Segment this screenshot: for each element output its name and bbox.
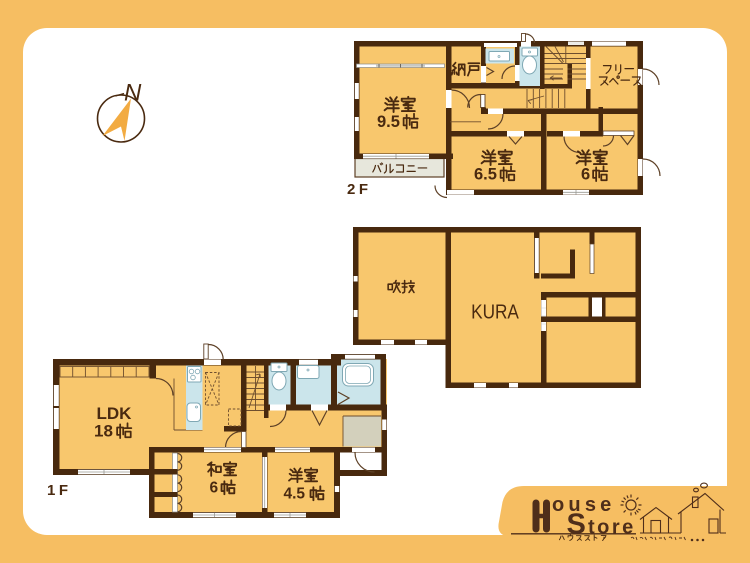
svg-text:LDK: LDK bbox=[97, 404, 133, 423]
svg-text:4.5: 4.5 bbox=[284, 486, 306, 503]
svg-text:9.5: 9.5 bbox=[377, 113, 400, 131]
svg-text:6.5: 6.5 bbox=[474, 166, 497, 184]
svg-text:N: N bbox=[124, 80, 142, 107]
svg-text:18: 18 bbox=[94, 422, 113, 441]
svg-text:6: 6 bbox=[581, 166, 590, 184]
svg-text:KURA: KURA bbox=[471, 301, 519, 324]
svg-text:2F: 2F bbox=[347, 181, 372, 198]
svg-text:tore: tore bbox=[588, 517, 636, 539]
svg-text:6: 6 bbox=[210, 480, 219, 497]
svg-text:1F: 1F bbox=[47, 482, 72, 499]
